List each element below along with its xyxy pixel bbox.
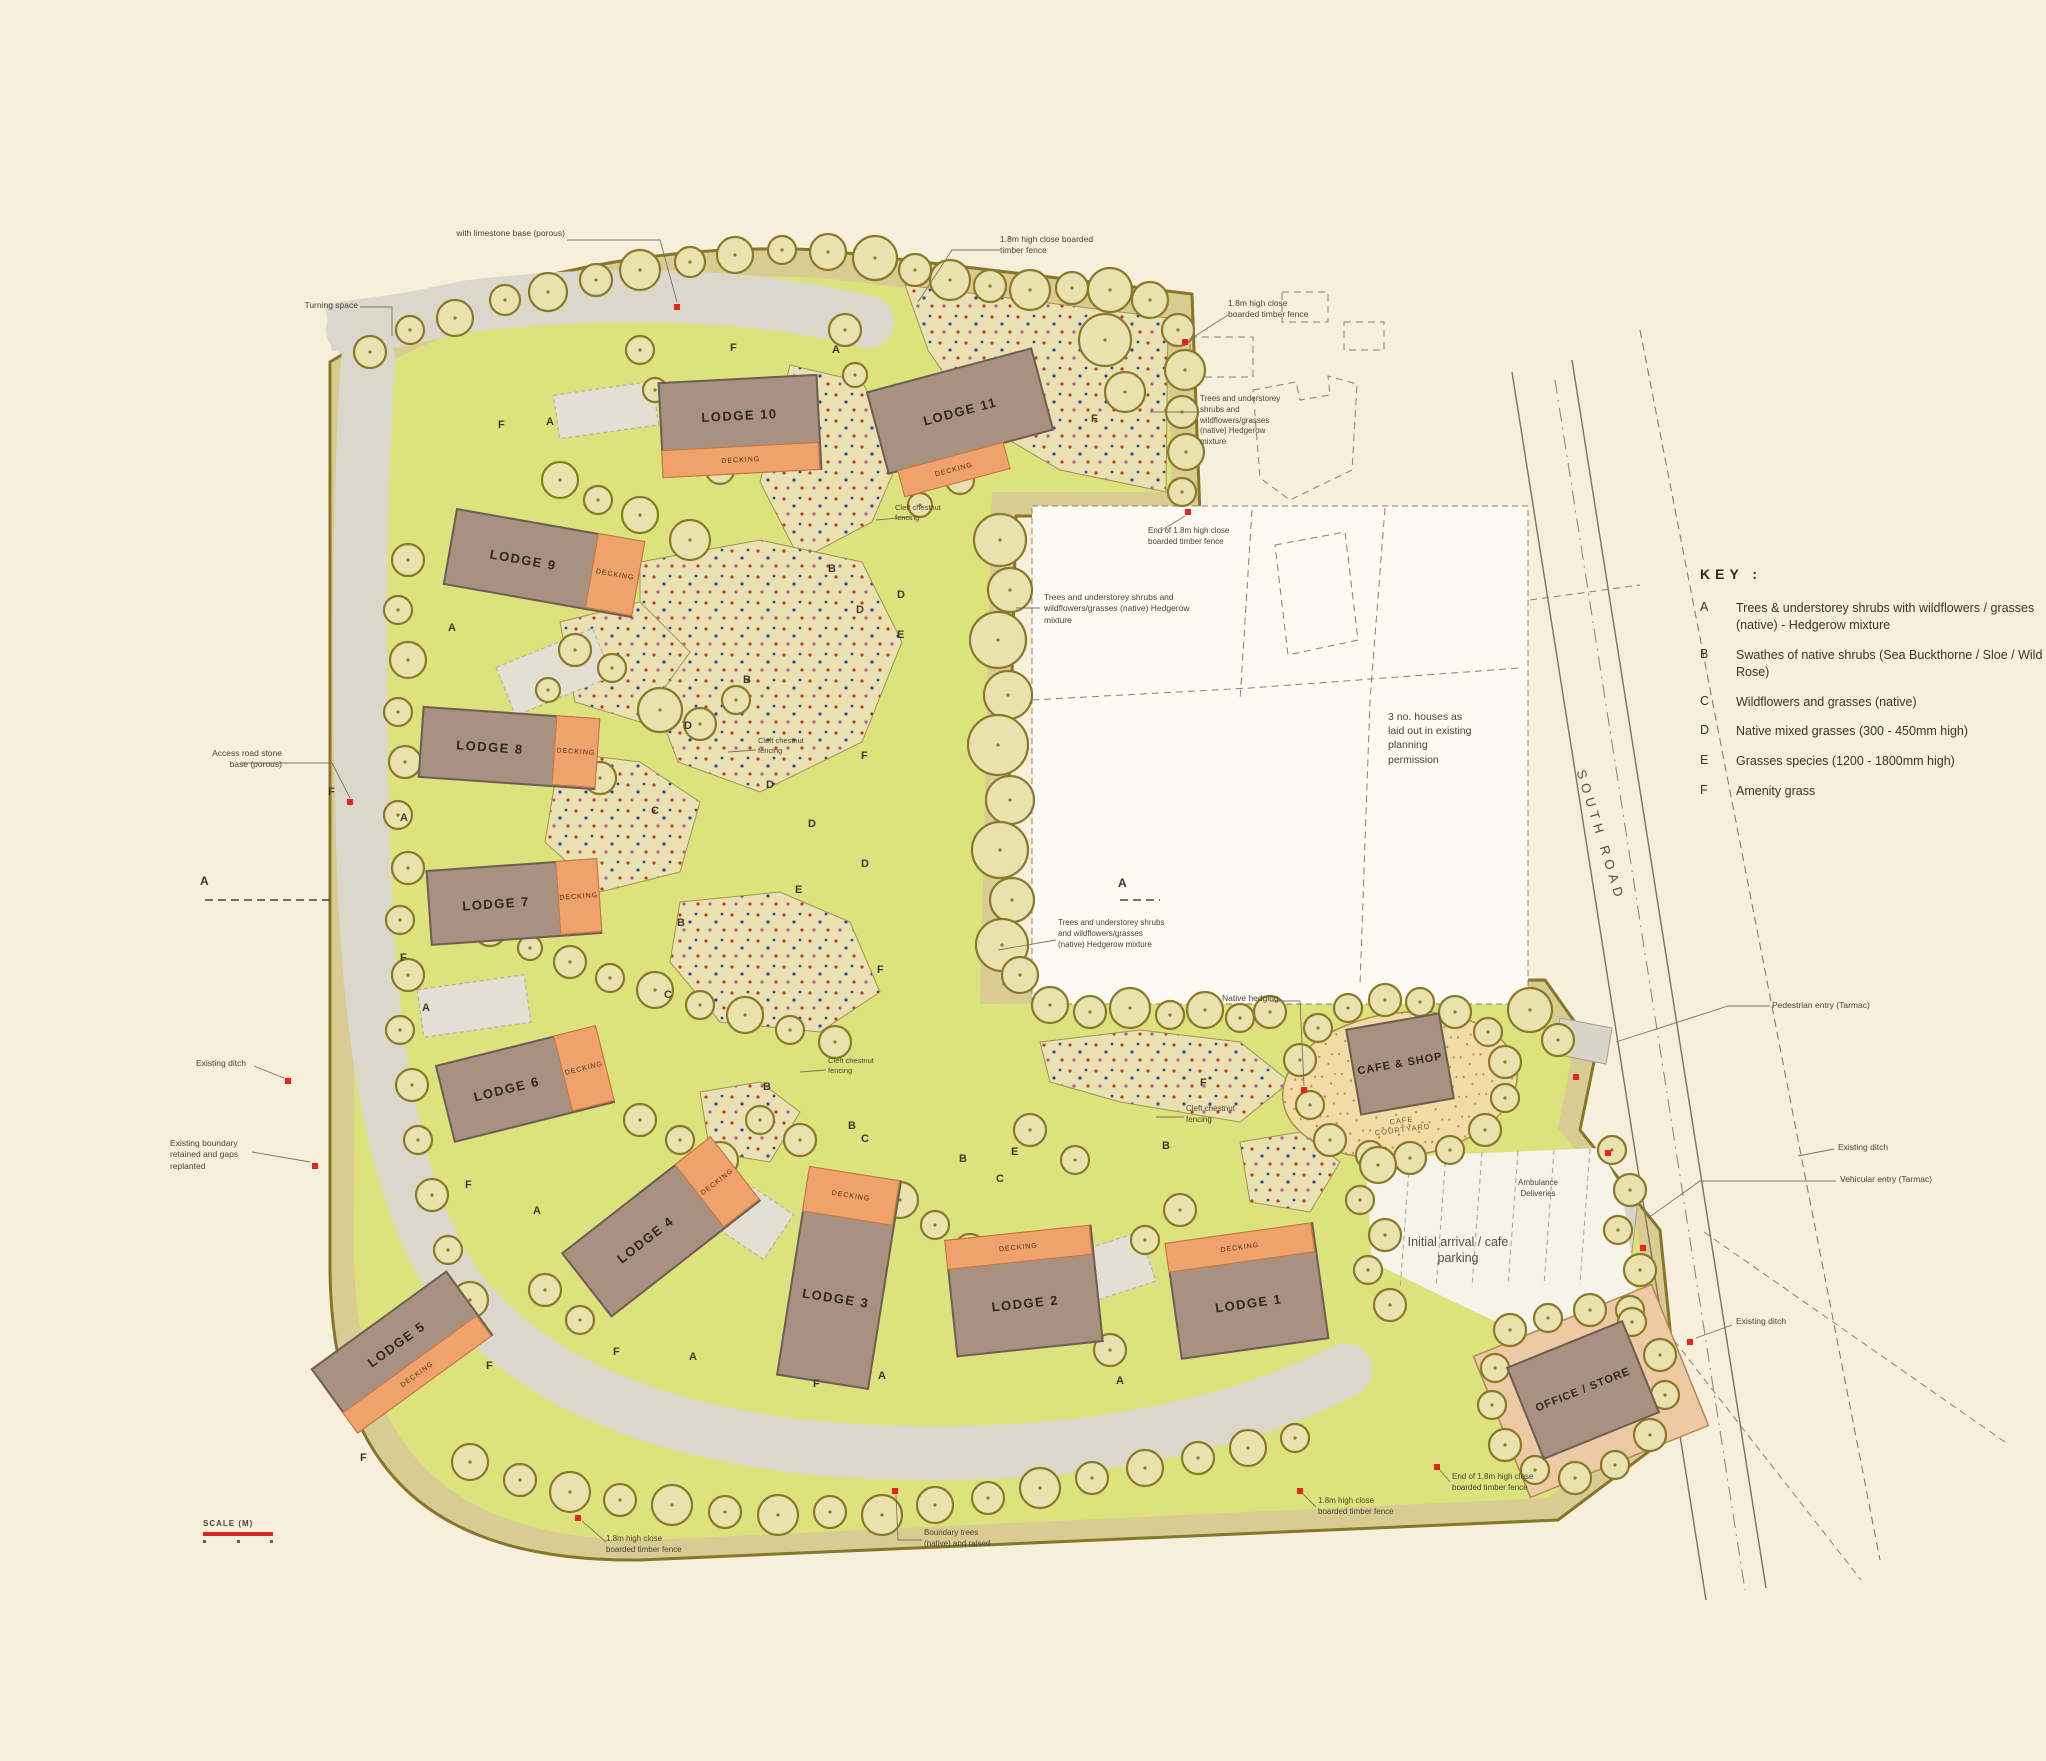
- zone-letter: F: [360, 1452, 367, 1464]
- lodge-1-label: LODGE 1: [1214, 1291, 1283, 1315]
- lodge-7-label: LODGE 7: [462, 893, 530, 913]
- lodge-9-decking-label: DECKING: [595, 568, 635, 582]
- zone-letter: F: [1200, 1077, 1207, 1089]
- lodge-11-label: LODGE 11: [922, 394, 999, 428]
- lodge-3-label: LODGE 3: [801, 1285, 870, 1310]
- note-end-fence-right: End of 1.8m high close boarded timber fe…: [1148, 526, 1234, 548]
- lodge-8: DECKING LODGE 8: [418, 706, 601, 790]
- zone-letter: D: [856, 604, 864, 616]
- note-ambulance-deliveries: Ambulance Deliveries: [1505, 1178, 1571, 1200]
- note-initial-arrival: Initial arrival / cafe parking: [1396, 1234, 1520, 1267]
- scale-bar: SCALE (M): [203, 1519, 273, 1543]
- zone-letter: F: [730, 342, 737, 354]
- scale-label: SCALE (M): [203, 1519, 273, 1528]
- note-fence-top: 1.8m high close boarded timber fence: [1000, 234, 1096, 257]
- key-item-d: DNative mixed grasses (300 - 450mm high): [1700, 723, 2044, 740]
- zone-letter: E: [1011, 1146, 1018, 1158]
- note-limestone-base: with limestone base (porous): [455, 228, 565, 239]
- zone-letter: A: [689, 1351, 697, 1363]
- zone-letter: F: [328, 786, 335, 798]
- note-cleft-fencing-3: Cleft chestnut fencing: [828, 1056, 888, 1076]
- note-hedgerow-center: Trees and understorey shrubs and wildflo…: [1044, 592, 1196, 626]
- scale-ticks: [203, 1540, 273, 1543]
- lodge-1: DECKING LODGE 1: [1165, 1222, 1330, 1360]
- note-pedestrian-entry: Pedestrian entry (Tarmac): [1772, 1000, 1902, 1011]
- zone-letter: B: [959, 1153, 967, 1165]
- cafe-shop-label: CAFE & SHOP: [1357, 1051, 1444, 1078]
- zone-letter: C: [664, 989, 672, 1001]
- zone-letter: C: [861, 1133, 869, 1145]
- key-item-f: FAmenity grass: [1700, 783, 2044, 800]
- zone-letter: F: [498, 419, 505, 431]
- note-fence-bottom-left: 1.8m high close boarded timber fence: [606, 1534, 686, 1556]
- note-cleft-fencing-1: Cleft chestnut fencing: [895, 503, 953, 523]
- zone-letter: A: [546, 416, 554, 428]
- zone-letter: E: [795, 884, 802, 896]
- zone-letter: D: [897, 589, 905, 601]
- lodge-7: DECKING LODGE 7: [426, 858, 603, 946]
- note-existing-ditch-right-1: Existing ditch: [1838, 1142, 1908, 1153]
- lodge-10-decking-label: DECKING: [721, 455, 760, 464]
- key-item-b: BSwathes of native shrubs (Sea Buckthorn…: [1700, 647, 2044, 681]
- site-plan: DECKING LODGE 1 DECKING LODGE 2 DECKING …: [0, 0, 2046, 1761]
- lodge-11-decking-label: DECKING: [934, 461, 973, 478]
- note-access-road: Access road stone base (porous): [196, 748, 282, 771]
- zone-letter: F: [613, 1346, 620, 1358]
- zone-letter: E: [897, 629, 904, 641]
- note-existing-ditch-left: Existing ditch: [196, 1058, 254, 1069]
- zone-letter: A: [533, 1205, 541, 1217]
- lodge-2: DECKING LODGE 2: [944, 1225, 1104, 1358]
- zone-letter: D: [808, 818, 816, 830]
- lodge-10-label: LODGE 10: [701, 406, 778, 425]
- zone-letter: A: [400, 812, 408, 824]
- lodge-8-label: LODGE 8: [456, 737, 524, 757]
- lodge-10: DECKING LODGE 10: [658, 374, 823, 478]
- note-end-fence-bottom-right: End of 1.8m high close boarded timber fe…: [1452, 1472, 1536, 1494]
- note-turning-space: Turning space: [288, 300, 358, 311]
- lodge-6-decking-label: DECKING: [564, 1060, 603, 1076]
- lodge-7-decking-label: DECKING: [559, 892, 598, 902]
- note-hedgerow-right: Trees and understorey shrubs and wildflo…: [1200, 394, 1282, 448]
- zone-letter: B: [848, 1120, 856, 1132]
- note-fence-top-right: 1.8m high close boarded timber fence: [1228, 298, 1316, 321]
- zone-letter: C: [996, 1173, 1004, 1185]
- key-item-c: CWildflowers and grasses (native): [1700, 694, 2044, 711]
- note-fence-bottom-right: 1.8m high close boarded timber fence: [1318, 1496, 1398, 1518]
- cafe-shop-building: CAFE & SHOP: [1345, 1012, 1455, 1115]
- note-planning-houses: 3 no. houses as laid out in existing pla…: [1388, 710, 1480, 767]
- lodge-6-label: LODGE 6: [472, 1073, 541, 1104]
- office-store-label: OFFICE / STORE: [1534, 1365, 1632, 1414]
- zone-letter: B: [1162, 1140, 1170, 1152]
- zone-letter: F: [1091, 413, 1098, 425]
- zone-letter: F: [486, 1360, 493, 1372]
- note-vehicular-entry: Vehicular entry (Tarmac): [1840, 1174, 1970, 1185]
- note-existing-ditch-right-2: Existing ditch: [1736, 1316, 1806, 1327]
- lodge-2-label: LODGE 2: [991, 1292, 1060, 1314]
- note-boundary-retained: Existing boundary retained and gaps repl…: [170, 1138, 252, 1172]
- key-item-a: ATrees & understorey shrubs with wildflo…: [1700, 600, 2044, 634]
- zone-letter: A: [878, 1370, 886, 1382]
- plan-artwork: [0, 0, 2046, 1761]
- zone-letter: F: [877, 964, 884, 976]
- zone-letter: B: [677, 917, 685, 929]
- zone-letter: C: [651, 805, 659, 817]
- lodge-8-decking-label: DECKING: [556, 747, 595, 757]
- note-native-hedging: Native hedging: [1222, 993, 1312, 1004]
- zone-letter: B: [763, 1081, 771, 1093]
- zone-letter: F: [465, 1179, 472, 1191]
- lodge-4-label: LODGE 4: [614, 1213, 676, 1266]
- zone-letter: B: [828, 563, 836, 575]
- section-marker-left: A: [200, 874, 209, 888]
- zone-letter: D: [766, 779, 774, 791]
- zone-letter: A: [448, 622, 456, 634]
- key-legend: KEY : ATrees & understorey shrubs with w…: [1700, 566, 2044, 813]
- lodge-2-decking-label: DECKING: [999, 1242, 1038, 1253]
- zone-letter: F: [861, 750, 868, 762]
- key-item-e: EGrasses species (1200 - 1800mm high): [1700, 753, 2044, 770]
- lodge-4-decking-label: DECKING: [700, 1167, 735, 1196]
- zone-letter: D: [861, 858, 869, 870]
- lodge-1-decking-label: DECKING: [1220, 1241, 1260, 1253]
- zone-letter: F: [813, 1378, 820, 1390]
- lodge-3-decking-label: DECKING: [831, 1189, 871, 1202]
- zone-letter: F: [400, 952, 407, 964]
- key-heading: KEY :: [1700, 566, 2044, 582]
- zone-letter: D: [684, 720, 692, 732]
- zone-letter: B: [743, 674, 751, 686]
- zone-letter: A: [832, 344, 840, 356]
- scale-bar-line: [203, 1532, 273, 1536]
- zone-letter: A: [422, 1002, 430, 1014]
- note-boundary-trees: Boundary trees (native) and raised: [924, 1528, 1006, 1550]
- note-cleft-fencing-2: Cleft chestnut fencing: [758, 736, 816, 756]
- note-cleft-fencing-4: Cleft chestnut fencing: [1186, 1104, 1252, 1126]
- note-hedgerow-center-2: Trees and understorey shrubs and wildflo…: [1058, 918, 1170, 950]
- section-marker-center: A: [1118, 876, 1127, 890]
- zone-letter: A: [1116, 1375, 1124, 1387]
- lodge-9-label: LODGE 9: [489, 546, 558, 573]
